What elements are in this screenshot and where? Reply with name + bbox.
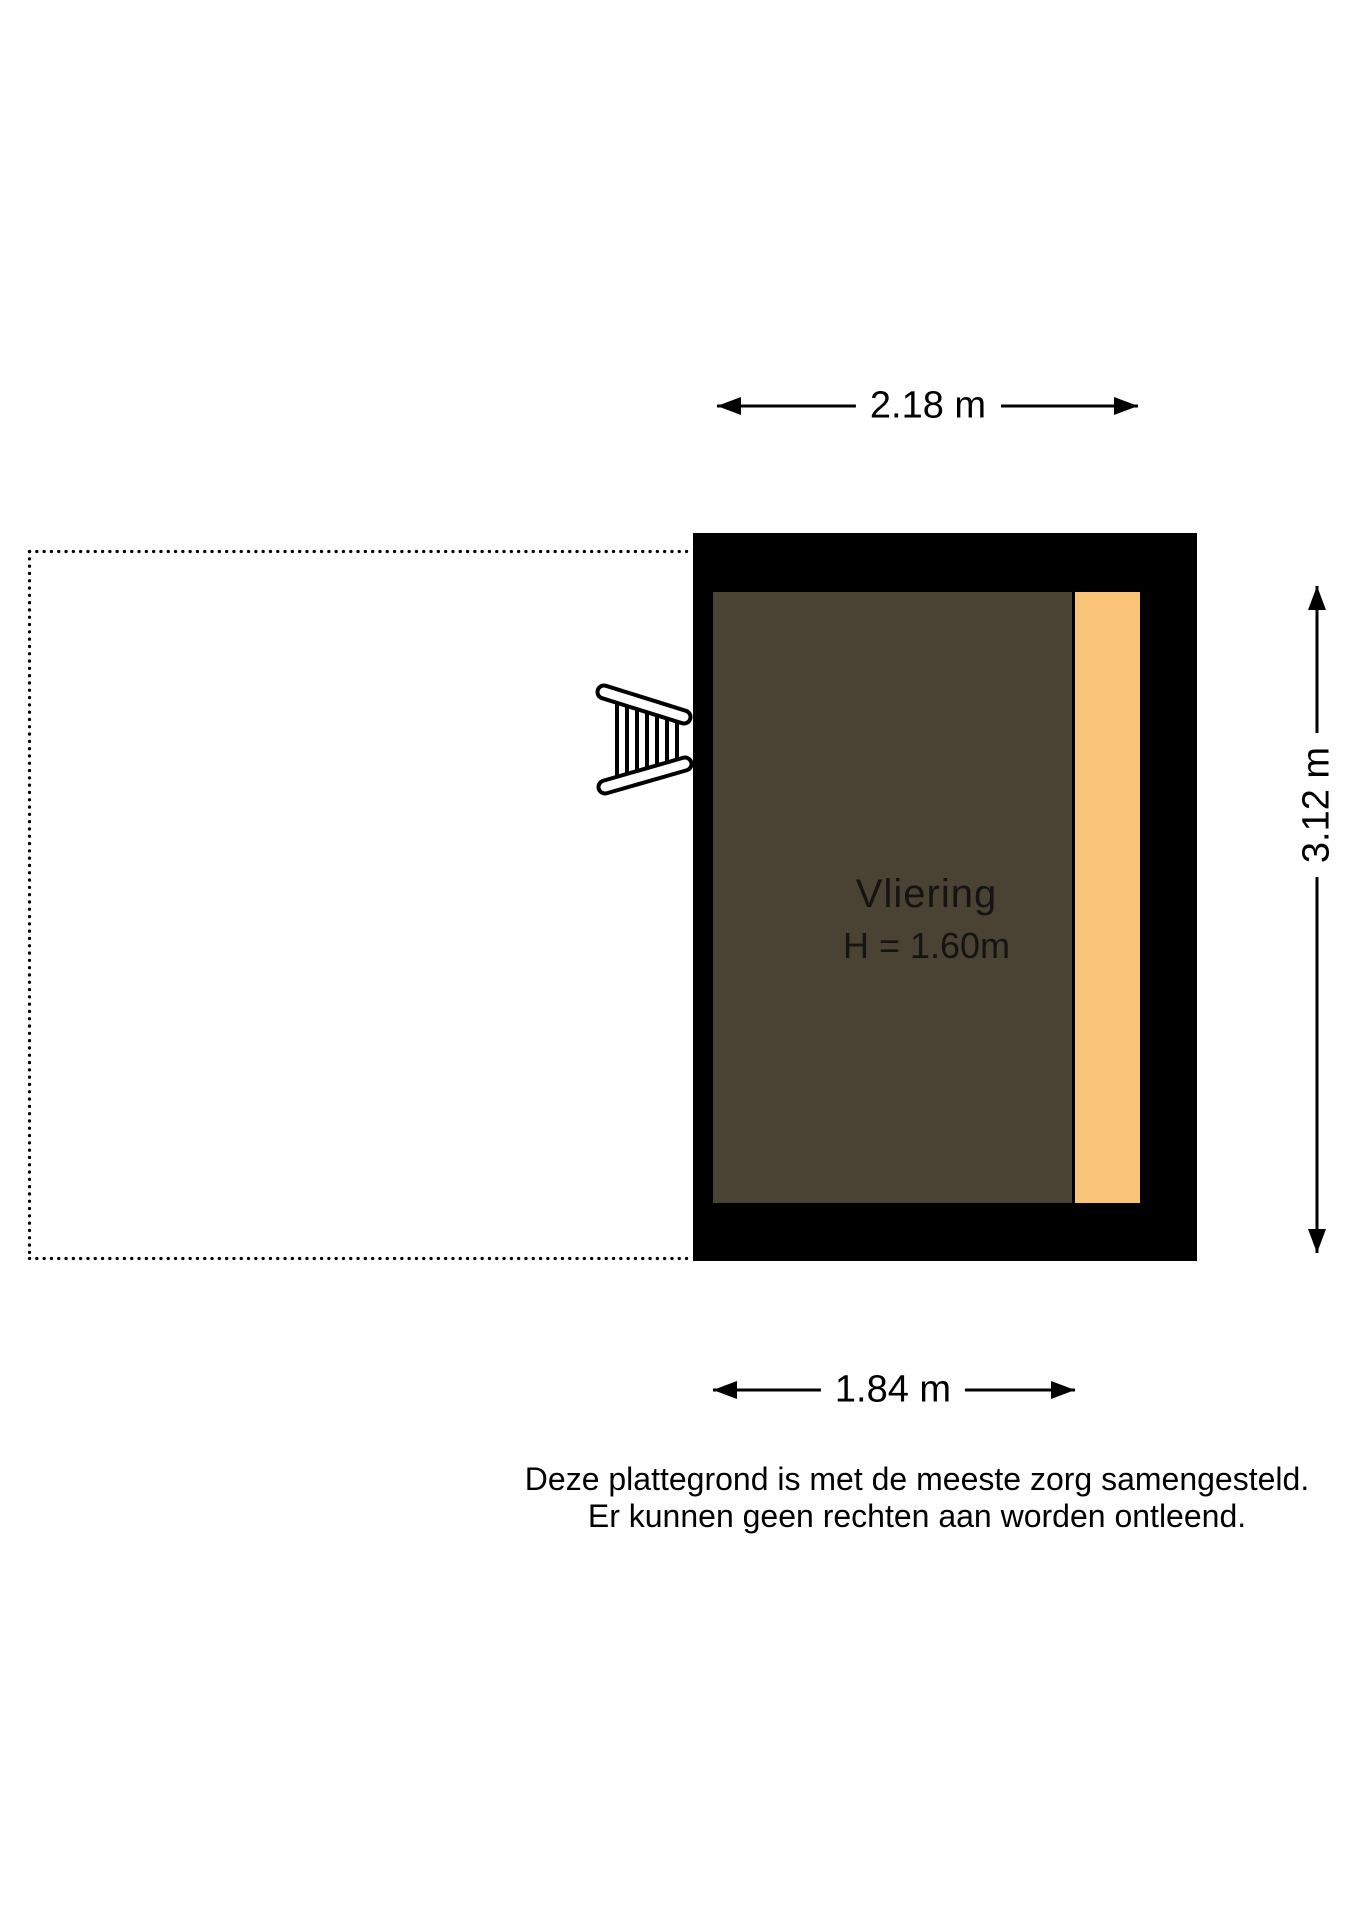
floorplan-canvas: Vliering H = 1.60m 2.18 m 3.12 m 1.84 m … [0, 0, 1358, 1920]
disclaimer-line-1: Deze plattegrond is met de meeste zorg s… [467, 1461, 1358, 1498]
ladder-icon [604, 692, 685, 787]
room-height-label: H = 1.60m [713, 926, 1140, 966]
dimension-top-label: 2.18 m [856, 385, 1000, 428]
dimension-bottom-label: 1.84 m [821, 1369, 965, 1412]
dimension-right-label: 3.12 m [1296, 733, 1339, 877]
disclaimer-text: Deze plattegrond is met de meeste zorg s… [467, 1461, 1358, 1535]
right-dimension-arrow [1308, 586, 1326, 1253]
disclaimer-line-2: Er kunnen geen rechten aan worden ontlee… [467, 1498, 1358, 1535]
room-name-label: Vliering [713, 872, 1140, 916]
room-label-block: Vliering H = 1.60m [713, 872, 1140, 966]
dotted-outline [30, 552, 692, 1259]
